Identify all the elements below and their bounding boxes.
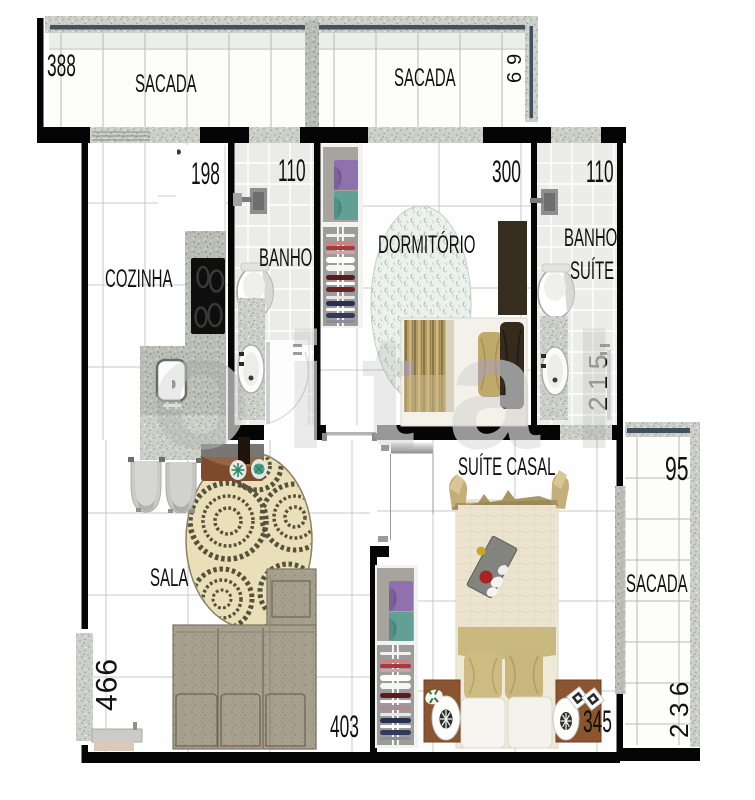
svg-text:SACADA: SACADA — [135, 70, 197, 98]
svg-text:466: 466 — [91, 658, 124, 711]
svg-text:DORMITÓRIO: DORMITÓRIO — [378, 231, 475, 259]
svg-text:69: 69 — [504, 47, 526, 83]
svg-text:SACADA: SACADA — [626, 570, 688, 598]
svg-text:BANHO: BANHO — [259, 244, 312, 272]
svg-text:110: 110 — [586, 155, 614, 190]
svg-text:COZINHA: COZINHA — [105, 265, 173, 293]
svg-text:236: 236 — [664, 675, 694, 738]
svg-text:oital: oital — [150, 299, 649, 483]
svg-text:300: 300 — [492, 155, 521, 190]
svg-text:345: 345 — [583, 705, 612, 740]
svg-text:95: 95 — [665, 450, 688, 487]
svg-text:403: 403 — [330, 710, 359, 745]
svg-text:SACADA: SACADA — [394, 64, 456, 92]
svg-text:BANHO: BANHO — [564, 224, 617, 252]
svg-text:388: 388 — [47, 49, 76, 84]
svg-text:SUÍTE: SUÍTE — [570, 257, 614, 285]
svg-text:198: 198 — [191, 157, 220, 192]
svg-text:110: 110 — [278, 154, 306, 189]
svg-text:SALA: SALA — [150, 564, 189, 592]
